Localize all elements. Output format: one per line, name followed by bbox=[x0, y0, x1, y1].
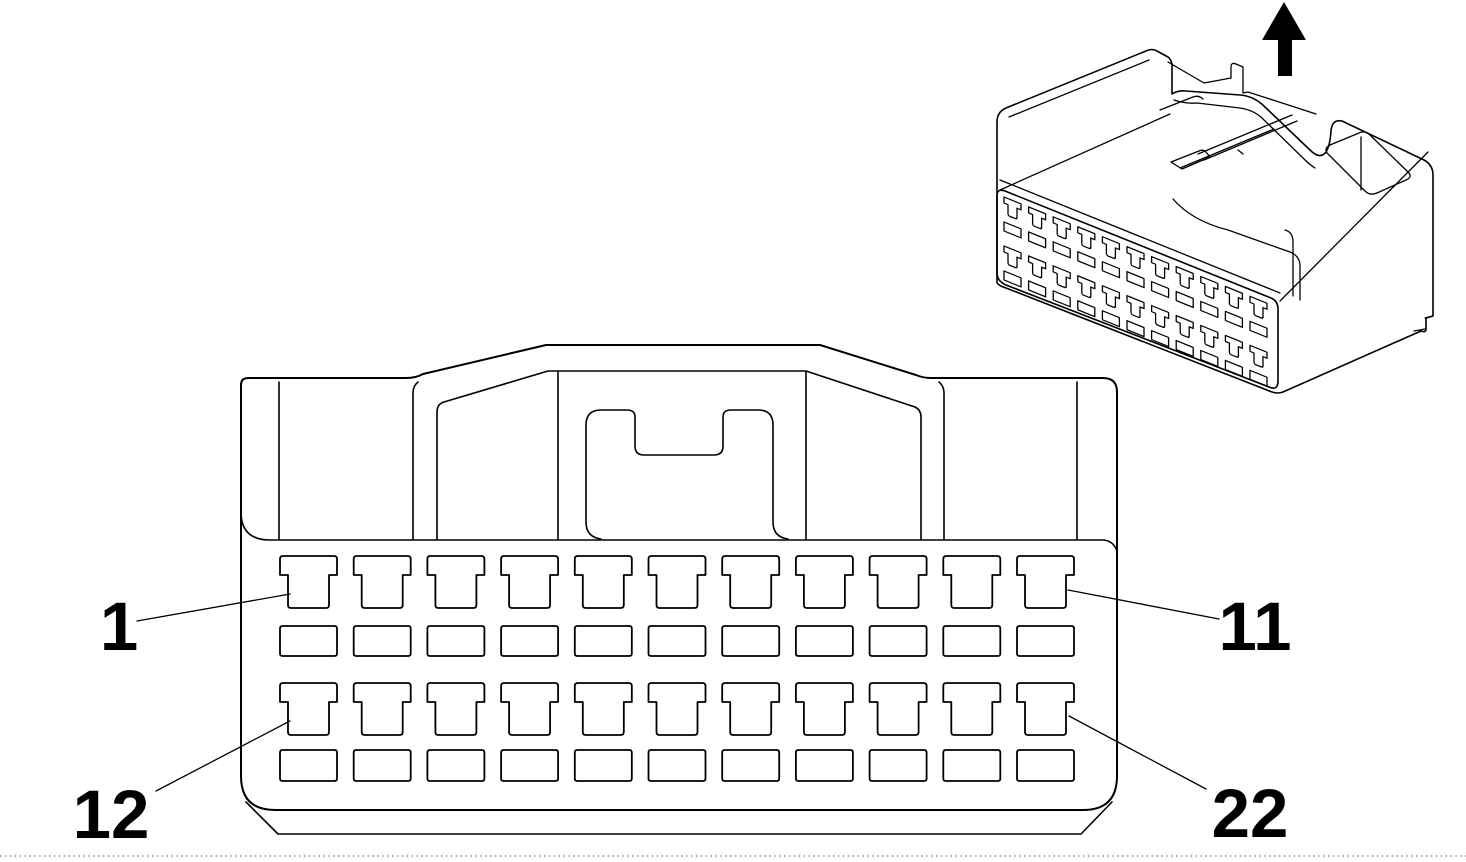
iso-lock-strap-upper bbox=[1168, 62, 1316, 114]
lock-window-row1-col9 bbox=[870, 626, 927, 656]
terminal-slot-row2-col2 bbox=[354, 683, 411, 735]
pin-1-leader-line bbox=[137, 594, 290, 621]
lock-window-row2-col10 bbox=[943, 750, 1000, 781]
front-view bbox=[241, 345, 1117, 834]
lock-window-row1-col7 bbox=[722, 626, 779, 656]
terminal-slot-row2-col6 bbox=[649, 683, 706, 735]
iso-lock-window-r2-c1 bbox=[1004, 222, 1021, 238]
terminal-slot-row2-col5 bbox=[575, 683, 632, 735]
lock-window-row1-col6 bbox=[649, 626, 706, 656]
bottom-skirt bbox=[246, 802, 1112, 834]
iso-back-wall-base bbox=[1000, 114, 1170, 190]
terminal-slot-row1-col4 bbox=[501, 556, 558, 608]
lock-window-row2-col6 bbox=[649, 750, 706, 781]
housing-outline bbox=[241, 345, 1117, 810]
pin-1-label: 1 bbox=[100, 588, 138, 665]
iso-lock-window-r2-c7 bbox=[1152, 282, 1169, 298]
iso-lock-window-r2-c5 bbox=[1102, 262, 1119, 278]
lock-window-row1-col3 bbox=[427, 626, 484, 656]
iso-terminal-slot-r1-c10 bbox=[1225, 286, 1242, 310]
terminal-slot-row1-col7 bbox=[722, 556, 779, 608]
iso-terminal-slot-r3-c3 bbox=[1053, 266, 1070, 290]
pin-12-leader-line bbox=[156, 721, 290, 791]
iso-terminal-slot-r1-c8 bbox=[1176, 267, 1193, 291]
iso-front-face bbox=[997, 190, 1278, 388]
terminal-slot-row1-col11 bbox=[1017, 556, 1074, 608]
lock-window-row2-col5 bbox=[575, 750, 632, 781]
iso-terminal-slot-r1-c11 bbox=[1250, 296, 1267, 320]
lock-window-row1-col2 bbox=[354, 626, 411, 656]
patent-figure-canvas: 1 11 12 22 bbox=[0, 0, 1466, 862]
iso-right-face-top-edge bbox=[1280, 152, 1428, 301]
connector-diagram: 1 11 12 22 bbox=[0, 0, 1466, 862]
iso-terminal-slot-r3-c1 bbox=[1004, 246, 1021, 270]
iso-terminal-slot-r3-c4 bbox=[1078, 276, 1095, 300]
iso-terminal-slot-r3-c5 bbox=[1102, 286, 1119, 310]
iso-corner-foot bbox=[1414, 316, 1433, 331]
iso-lock-window bbox=[1171, 150, 1210, 169]
up-arrow-icon bbox=[1262, 2, 1306, 76]
lock-window-row1-col8 bbox=[796, 626, 853, 656]
iso-terminal-slot-r1-c7 bbox=[1152, 257, 1169, 281]
iso-terminal-slot-r1-c9 bbox=[1201, 277, 1218, 301]
iso-terminal-slot-r3-c8 bbox=[1176, 316, 1193, 340]
terminal-slot-row2-col3 bbox=[427, 683, 484, 735]
terminal-slot-row1-col10 bbox=[943, 556, 1000, 608]
iso-terminal-slot-r3-c10 bbox=[1225, 335, 1242, 359]
lock-window-row2-col11 bbox=[1017, 750, 1074, 781]
iso-guide-rail-3 bbox=[1204, 121, 1297, 160]
terminal-slot-row2-col9 bbox=[870, 683, 927, 735]
iso-lock-window-r2-c3 bbox=[1053, 242, 1070, 258]
leader-lines bbox=[137, 590, 1219, 791]
lock-window-row2-col4 bbox=[501, 750, 558, 781]
latch-recess bbox=[586, 410, 788, 539]
pin-11-label: 11 bbox=[1219, 588, 1292, 665]
iso-terminal-slot-r1-c4 bbox=[1078, 227, 1095, 251]
terminal-slot-row1-col2 bbox=[354, 556, 411, 608]
terminal-slot-row1-col9 bbox=[870, 556, 927, 608]
lock-window-row2-col8 bbox=[796, 750, 853, 781]
iso-lock-window-r4-c6 bbox=[1127, 321, 1144, 337]
left-shoulder-right-edge bbox=[413, 382, 418, 539]
iso-lock-window-r2-c9 bbox=[1201, 302, 1218, 318]
iso-terminal-slot-r3-c2 bbox=[1029, 256, 1046, 280]
iso-right-cavity bbox=[1326, 132, 1410, 194]
lock-window-row1-col10 bbox=[943, 626, 1000, 656]
terminal-slot-row1-col5 bbox=[575, 556, 632, 608]
iso-terminal-slot-r1-c3 bbox=[1053, 217, 1070, 241]
iso-terminal-slot-r1-c5 bbox=[1102, 237, 1119, 261]
lock-window-row2-col9 bbox=[870, 750, 927, 781]
right-shoulder-left-edge bbox=[939, 382, 944, 539]
terminal-slot-row2-col1 bbox=[280, 683, 337, 735]
terminal-slot-row1-col3 bbox=[427, 556, 484, 608]
iso-terminal-slot-r3-c7 bbox=[1152, 306, 1169, 330]
iso-terminal-slot-r1-c6 bbox=[1127, 247, 1144, 271]
lock-window-row1-col4 bbox=[501, 626, 558, 656]
lock-window-row1-col5 bbox=[575, 626, 632, 656]
iso-back-wall-inner-top bbox=[1009, 60, 1149, 117]
iso-lock-window-r4-c5 bbox=[1102, 311, 1119, 327]
pin-22-label: 22 bbox=[1212, 775, 1289, 852]
terminal-slot-row2-col10 bbox=[943, 683, 1000, 735]
lock-window-row2-col3 bbox=[427, 750, 484, 781]
iso-lock-window-r2-c8 bbox=[1176, 292, 1193, 308]
iso-terminal-slot-r1-c2 bbox=[1029, 207, 1046, 231]
iso-housing-silhouette bbox=[997, 50, 1433, 394]
iso-lock-window-r2-c6 bbox=[1127, 272, 1144, 288]
iso-rail-tick bbox=[1238, 150, 1243, 154]
iso-lock-window-r2-c2 bbox=[1029, 232, 1046, 248]
terminal-cavity-grid bbox=[280, 556, 1074, 781]
terminal-slot-row2-col8 bbox=[796, 683, 853, 735]
pin-11-leader-line bbox=[1068, 590, 1219, 619]
terminal-slot-row2-col4 bbox=[501, 683, 558, 735]
iso-terminal-grid bbox=[1004, 197, 1267, 386]
terminal-slot-row1-col1 bbox=[280, 556, 337, 608]
pin-22-leader-line bbox=[1069, 716, 1206, 789]
iso-terminal-slot-r1-c1 bbox=[1004, 197, 1021, 221]
terminal-slot-row2-col11 bbox=[1017, 683, 1074, 735]
iso-lock-window-r2-c4 bbox=[1078, 252, 1095, 268]
lock-window-row2-col7 bbox=[722, 750, 779, 781]
iso-lock-window-r2-c11 bbox=[1250, 321, 1267, 337]
lock-window-row2-col1 bbox=[280, 750, 337, 781]
terminal-band-top-edge bbox=[241, 512, 1117, 551]
iso-collar-inner-edge bbox=[1285, 230, 1293, 296]
iso-terminal-slot-r3-c6 bbox=[1127, 296, 1144, 320]
iso-terminal-slot-r3-c9 bbox=[1201, 326, 1218, 350]
iso-terminal-slot-r3-c11 bbox=[1250, 345, 1267, 369]
lock-window-row1-col11 bbox=[1017, 626, 1074, 656]
terminal-slot-row2-col7 bbox=[722, 683, 779, 735]
terminal-slot-row1-col6 bbox=[649, 556, 706, 608]
lock-window-row2-col2 bbox=[354, 750, 411, 781]
terminal-slot-row1-col8 bbox=[796, 556, 853, 608]
lock-window-row1-col1 bbox=[280, 626, 337, 656]
iso-guide-rail-2 bbox=[1198, 115, 1292, 154]
iso-guide-rail-1 bbox=[1180, 129, 1274, 168]
isometric-view bbox=[997, 50, 1433, 394]
pin-12-label: 12 bbox=[73, 776, 150, 853]
iso-lock-window-r2-c10 bbox=[1225, 311, 1242, 327]
